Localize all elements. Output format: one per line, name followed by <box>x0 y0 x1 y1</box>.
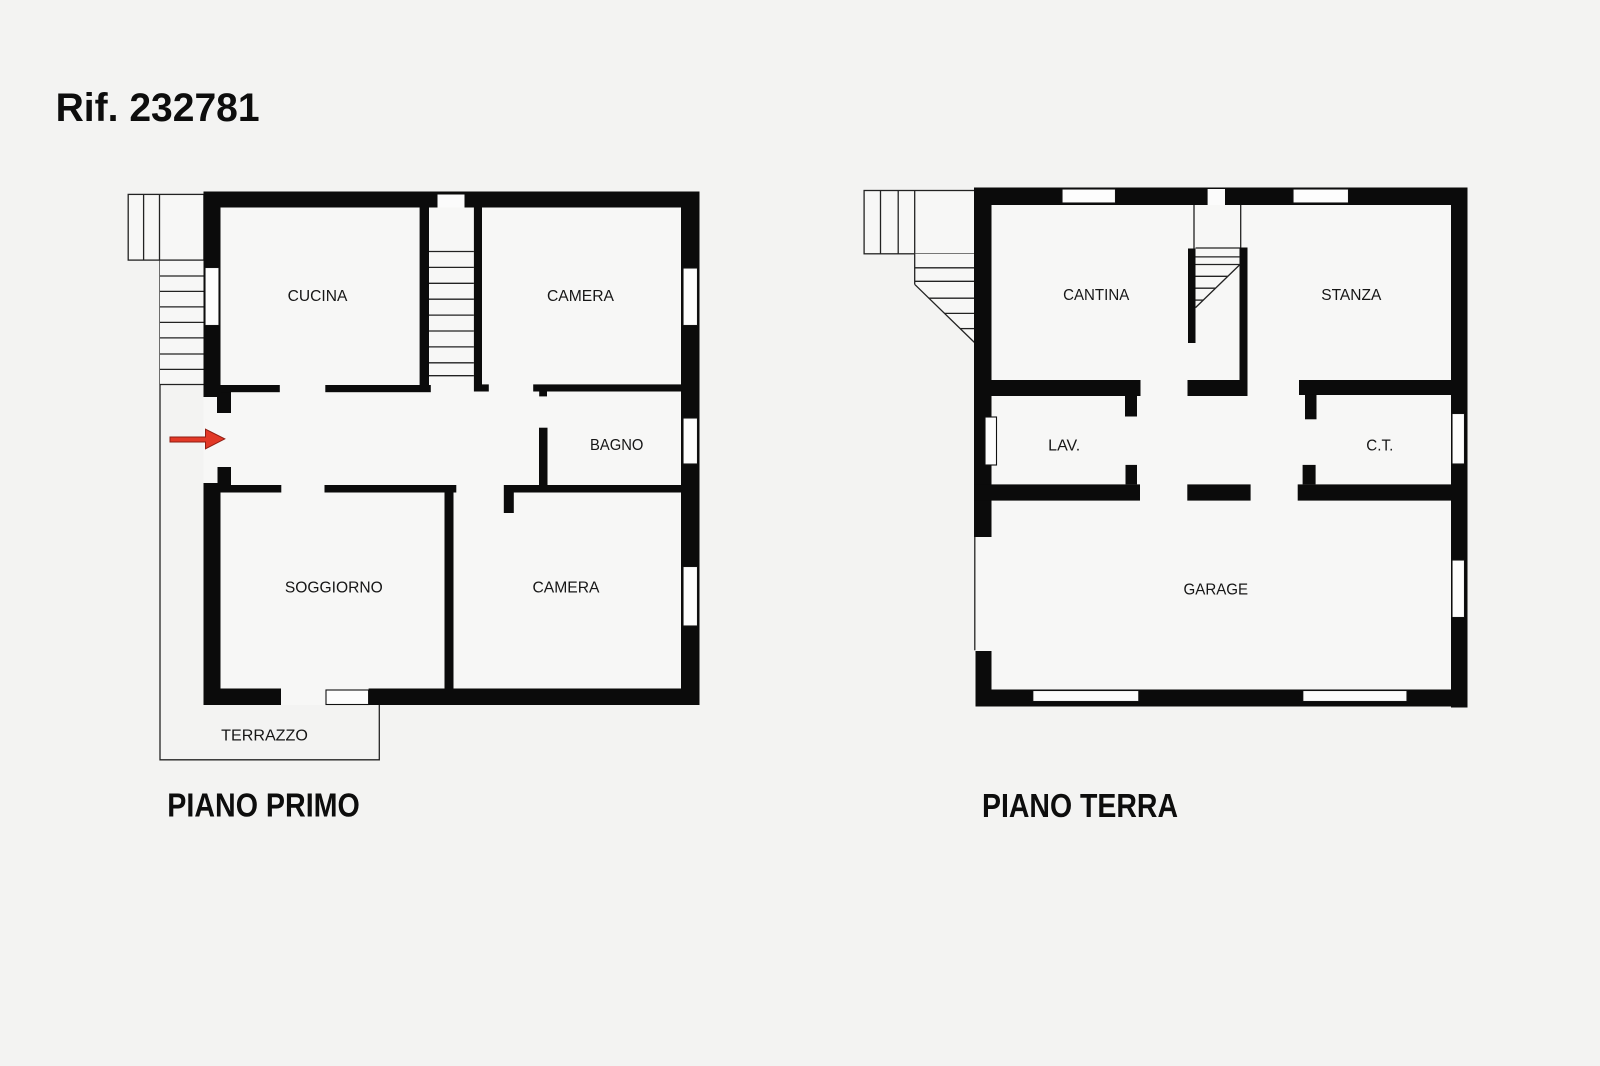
svg-text:Rif. 232781: Rif. 232781 <box>56 86 260 130</box>
svg-text:CUCINA: CUCINA <box>288 288 348 305</box>
svg-text:CAMERA: CAMERA <box>547 288 614 305</box>
svg-text:CAMERA: CAMERA <box>533 580 600 597</box>
svg-text:BAGNO: BAGNO <box>590 437 643 454</box>
svg-text:PIANO PRIMO: PIANO PRIMO <box>167 787 359 824</box>
svg-text:PIANO TERRA: PIANO TERRA <box>982 787 1178 824</box>
svg-text:LAV.: LAV. <box>1048 438 1080 455</box>
svg-text:STANZA: STANZA <box>1321 287 1382 304</box>
svg-text:GARAGE: GARAGE <box>1184 582 1249 599</box>
svg-text:SOGGIORNO: SOGGIORNO <box>285 580 383 597</box>
svg-text:TERRAZZO: TERRAZZO <box>221 728 308 745</box>
svg-text:CANTINA: CANTINA <box>1063 287 1130 304</box>
svg-text:C.T.: C.T. <box>1366 438 1393 455</box>
